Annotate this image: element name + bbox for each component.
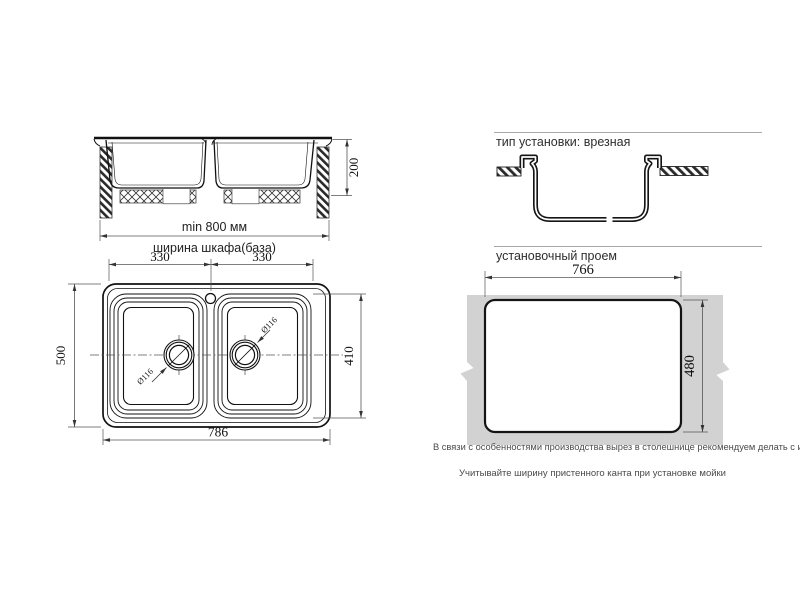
dim-330-right: 330 xyxy=(252,249,272,264)
dim-480: 480 xyxy=(682,355,698,377)
bowl-sections xyxy=(106,139,318,188)
dimension-bowl-depth: 200 xyxy=(331,140,361,196)
cutout-heading: установочный проем xyxy=(496,249,617,263)
sink-outline xyxy=(103,284,330,427)
top-view-drawing: Ø116 Ø116 330 330 500 410 786 xyxy=(55,248,375,453)
bowl-bottom-hatch xyxy=(120,189,300,204)
install-note: Учитывайте ширину пристенного канта при … xyxy=(459,468,726,479)
dimension-cutout-width: 766 xyxy=(485,262,681,297)
divider-rule-top xyxy=(494,132,762,133)
dim-766: 766 xyxy=(572,262,594,278)
left-drain xyxy=(164,340,194,370)
top-view: Ø116 Ø116 330 330 500 410 786 xyxy=(55,248,375,453)
dim-min-800: min 800 мм xyxy=(182,220,247,234)
countertop-right xyxy=(660,167,708,176)
divider-rule-middle xyxy=(494,246,762,247)
tap-hole xyxy=(206,294,216,304)
dim-200: 200 xyxy=(346,158,361,178)
front-section-view: 200 min 800 мм ширина шкафа(база) xyxy=(60,125,360,260)
cabinet-wall-right xyxy=(317,147,329,218)
dim-410: 410 xyxy=(341,346,356,366)
countertop-left xyxy=(497,167,521,176)
dim-500: 500 xyxy=(53,346,68,366)
production-note: В связи с особенностями производства выр… xyxy=(433,442,800,452)
install-type-heading: тип установки: врезная xyxy=(496,135,630,149)
dimension-overall-depth: 500 xyxy=(53,284,101,427)
installation-section-drawing xyxy=(486,148,766,240)
cutout-opening xyxy=(485,300,681,432)
front-section-drawing: 200 min 800 мм ширина шкафа(база) xyxy=(60,125,360,260)
cutout-drawing: 766 480 xyxy=(455,262,775,447)
sink-edge-profile xyxy=(522,157,660,220)
dim-786: 786 xyxy=(208,425,229,440)
cutout-view: 766 480 xyxy=(455,262,775,447)
dim-330-left: 330 xyxy=(150,249,170,264)
installation-type-view xyxy=(486,148,766,240)
right-drain xyxy=(230,340,260,370)
